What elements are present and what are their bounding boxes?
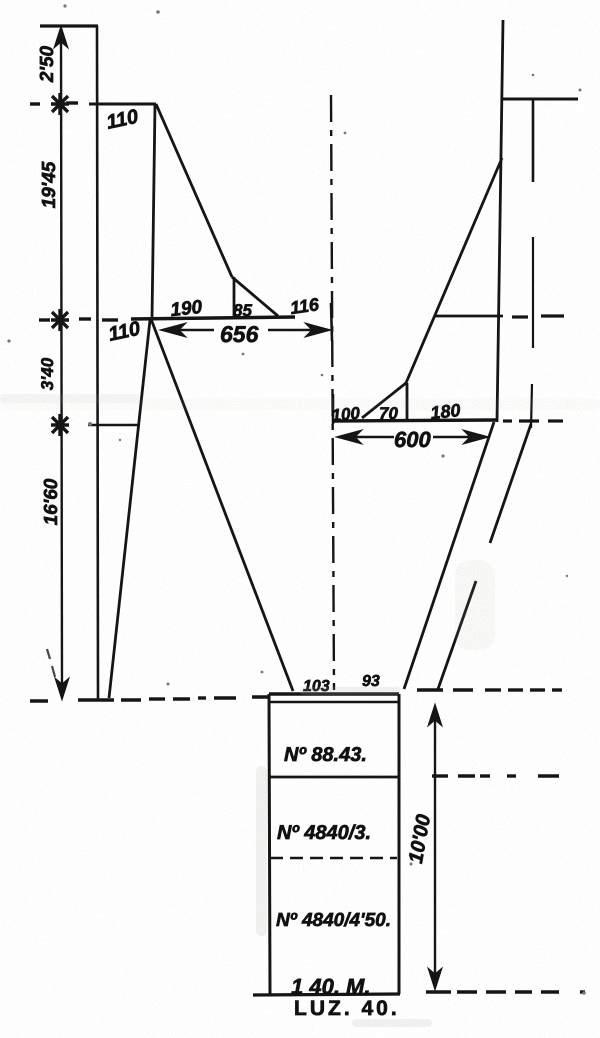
svg-text:19'45: 19'45 xyxy=(39,161,60,208)
svg-text:1 40. M.: 1 40. M. xyxy=(291,974,370,999)
svg-text:Nº 4840/4'50.: Nº 4840/4'50. xyxy=(276,910,391,931)
svg-text:656: 656 xyxy=(220,321,259,347)
svg-text:2'50: 2'50 xyxy=(37,45,58,83)
svg-text:190: 190 xyxy=(169,297,203,321)
svg-text:Nº 88.43.: Nº 88.43. xyxy=(284,744,367,766)
svg-text:16'60: 16'60 xyxy=(41,478,62,525)
svg-text:3'40: 3'40 xyxy=(38,357,57,390)
svg-text:116: 116 xyxy=(289,294,321,318)
svg-text:LUZ. 40.: LUZ. 40. xyxy=(294,997,400,1020)
svg-text:600: 600 xyxy=(394,427,431,452)
svg-text:85: 85 xyxy=(233,301,252,320)
svg-text:Nº 4840/3.: Nº 4840/3. xyxy=(277,822,371,844)
